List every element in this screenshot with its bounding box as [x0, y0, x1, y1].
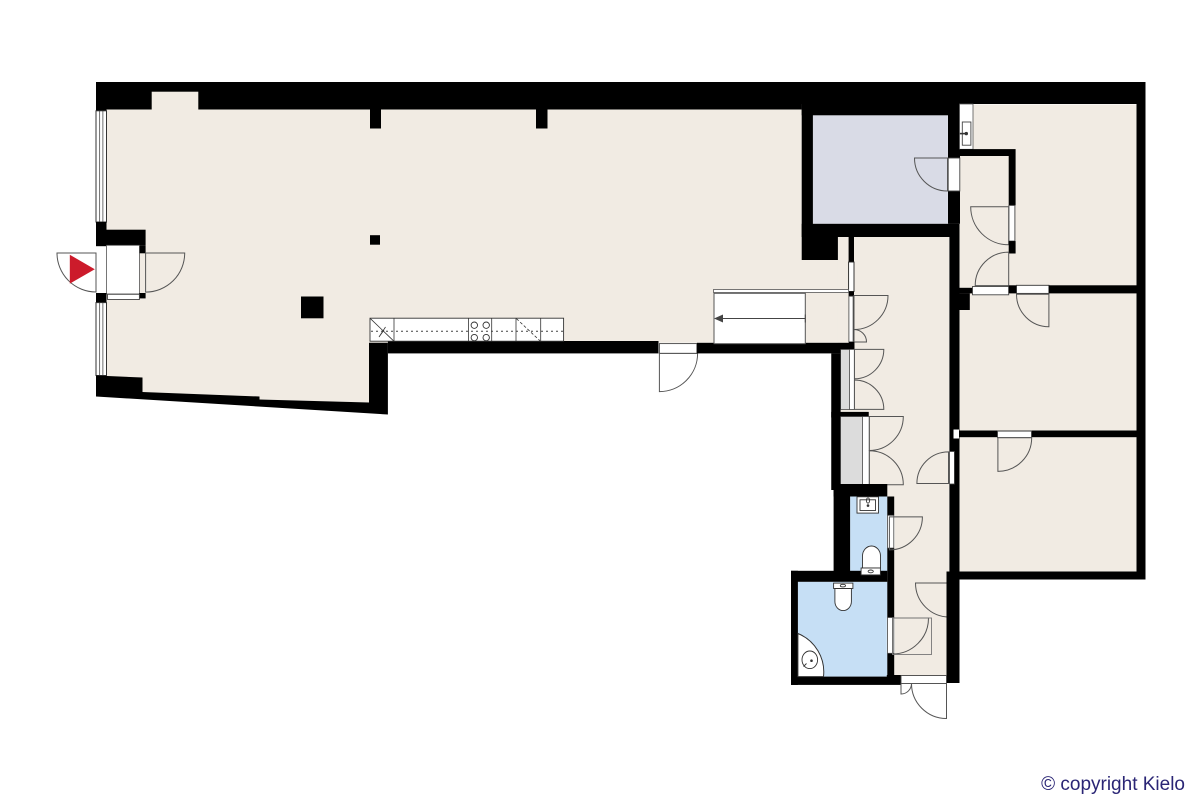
- svg-text:© copyright Kielo: © copyright Kielo: [1041, 774, 1185, 795]
